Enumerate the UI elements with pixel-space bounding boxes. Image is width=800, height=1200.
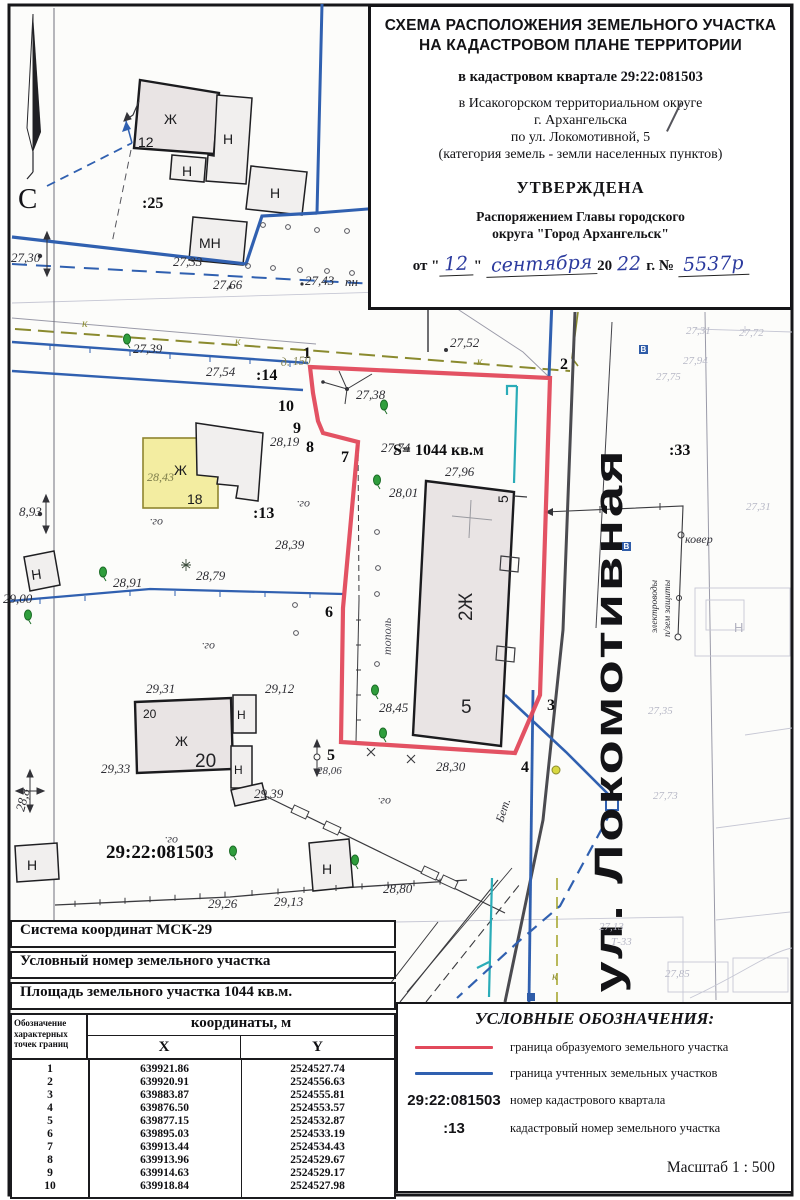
y-coordinate-cell: 2524534.43	[241, 1141, 394, 1154]
approval-date-line: от "12" сентября2022г. № 5537р	[371, 253, 790, 276]
coordinate-row: 4639876.502524553.57	[12, 1102, 394, 1115]
conditional-number-row: Условный номер земельного участка	[10, 951, 396, 979]
map-label: 27,30	[11, 250, 41, 265]
legend-line-swatch	[415, 1046, 493, 1049]
legend-symbol-text: :13	[443, 1120, 465, 1137]
map-label: 27,73	[653, 790, 678, 802]
map-label: 29,00	[3, 591, 33, 606]
map-label: Ж	[174, 462, 187, 478]
approved-heading: УТВЕРЖДЕНА	[371, 178, 790, 198]
map-label: 28,01	[389, 485, 418, 500]
coordinates-box: Обозначение характерных точек границ коо…	[10, 1013, 396, 1199]
area-row: Площадь земельного участка 1044 кв.м.	[10, 982, 396, 1010]
map-label: 29,31	[146, 681, 175, 696]
legend-item: 29:22:081503номер кадастрового квартала	[406, 1092, 791, 1109]
coordinates-header: Обозначение характерных точек границ коо…	[12, 1015, 394, 1060]
map-label: В	[641, 345, 647, 354]
map-label: В	[624, 542, 630, 551]
map-label: 27,13	[599, 921, 624, 933]
y-coordinate-cell: 2524532.87	[241, 1115, 394, 1128]
map-label: 28,06	[317, 765, 342, 777]
x-coordinate-cell: 639883.87	[88, 1089, 241, 1102]
map-label: 29,13	[274, 894, 304, 909]
building-n	[24, 551, 60, 591]
map-label: 5	[495, 495, 511, 503]
map-label: С	[18, 183, 37, 215]
map-label: 27,31	[746, 501, 771, 513]
scale-note: Масштаб 1 : 500	[667, 1159, 775, 1177]
coordinate-row: 1639921.862524527.74	[12, 1063, 394, 1076]
handwritten-doc-number: 5537р	[677, 252, 748, 277]
point-number-cell: 8	[12, 1154, 88, 1167]
map-label: к	[235, 334, 241, 348]
point-number-cell: 6	[12, 1128, 88, 1141]
map-label: 29:22:081503	[106, 842, 214, 863]
coordinate-row: 3639883.872524555.81	[12, 1089, 394, 1102]
date-prefix: от "	[413, 258, 440, 274]
date-suffix: г. №	[646, 258, 674, 274]
coordinate-row: 7639913.442524534.43	[12, 1141, 394, 1154]
map-label: п/зем защиты	[663, 579, 673, 637]
point-number-cell: 5	[12, 1115, 88, 1128]
map-label: ковер	[685, 532, 713, 546]
y-coordinate-cell: 2524529.17	[241, 1167, 394, 1180]
handwritten-year: 22	[612, 252, 647, 275]
column-divider	[88, 1060, 90, 1197]
y-coordinate-cell: 2524527.74	[241, 1063, 394, 1076]
x-coordinate-cell: 639877.15	[88, 1115, 241, 1128]
title-block: СХЕМА РАСПОЛОЖЕНИЯ ЗЕМЕЛЬНОГО УЧАСТКА НА…	[368, 4, 793, 310]
map-label: 27,31	[686, 325, 711, 337]
map-label: 27,72	[739, 327, 764, 339]
legend-item: :13кадастровый номер земельного участка	[406, 1120, 791, 1137]
map-label: Т-33	[611, 936, 632, 948]
map-label: ог.	[201, 640, 215, 654]
map-label: 18	[187, 491, 203, 507]
map-label: 9	[293, 420, 301, 437]
map-label: Н	[734, 620, 743, 635]
legend: УСЛОВНЫЕ ОБОЗНАЧЕНИЯ: граница образуемог…	[396, 1002, 793, 1193]
legend-title: УСЛОВНЫЕ ОБОЗНАЧЕНИЯ:	[398, 1009, 791, 1029]
point-number-cell: 3	[12, 1089, 88, 1102]
map-label: 29,26	[208, 896, 238, 911]
map-label: 27,33	[173, 254, 203, 269]
map-label: 28,80	[383, 881, 413, 896]
y-coordinate-cell: 2524556.63	[241, 1076, 394, 1089]
coordinate-row: 2639920.912524556.63	[12, 1076, 394, 1089]
map-label: к	[82, 316, 88, 330]
map-label: ог.	[296, 498, 310, 512]
x-coordinate-cell: 639914.63	[88, 1167, 241, 1180]
y-coordinate-cell: 2524555.81	[241, 1089, 394, 1102]
map-label: 10	[278, 398, 294, 415]
map-label: 28,79	[196, 568, 226, 583]
map-label: 8	[306, 439, 314, 456]
doc-title-line2: НА КАДАСТРОВОМ ПЛАНЕ ТЕРРИТОРИИ	[371, 36, 790, 56]
map-label: 27,35	[648, 705, 673, 717]
map-label: :33	[669, 442, 690, 459]
date-quote: "	[474, 258, 482, 274]
map-label: ог.	[149, 516, 163, 530]
map-label: пн	[345, 274, 358, 289]
valve-marker	[552, 766, 560, 774]
map-label: 27,66	[213, 277, 243, 292]
street-line: по ул. Локомотивной, 5	[371, 129, 790, 146]
map-label: Н	[182, 163, 192, 179]
x-column-header: X	[88, 1036, 241, 1058]
point-number-cell: 7	[12, 1141, 88, 1154]
map-label: 27,43	[305, 273, 335, 288]
land-category-line: (категория земель - земли населенных пун…	[371, 146, 790, 163]
legend-item-label: кадастровый номер земельного участка	[510, 1121, 720, 1136]
coordinate-row: 10639918.842524527.98	[12, 1180, 394, 1193]
point-number-cell: 2	[12, 1076, 88, 1089]
map-label: 12	[138, 134, 154, 150]
map-label: 29,39	[254, 786, 284, 801]
coords-column-header: координаты, м	[88, 1015, 394, 1036]
doc-title-line1: СХЕМА РАСПОЛОЖЕНИЯ ЗЕМЕЛЬНОГО УЧАСТКА	[371, 16, 790, 36]
y-coordinate-cell: 2524527.98	[241, 1180, 394, 1193]
map-label: 27,85	[665, 968, 690, 980]
map-label: 28,45	[379, 700, 409, 715]
map-label: ог.	[164, 834, 178, 848]
map-label: 2Ж	[456, 592, 477, 621]
map-label: 5	[461, 697, 472, 718]
point-number-cell: 9	[12, 1167, 88, 1180]
map-label: :14	[256, 367, 277, 384]
x-coordinate-cell: 639913.96	[88, 1154, 241, 1167]
y-coordinate-cell: 2524533.19	[241, 1128, 394, 1141]
map-label: 27,38	[356, 387, 386, 402]
map-label: 27,96	[445, 464, 475, 479]
map-label: 27,94	[683, 355, 708, 367]
map-label: 20	[195, 751, 216, 772]
map-label: 28,30	[436, 759, 466, 774]
map-label: 27,39	[133, 341, 163, 356]
x-coordinate-cell: 639918.84	[88, 1180, 241, 1193]
map-label: 27,54	[206, 364, 236, 379]
map-label: 27,52	[450, 335, 480, 350]
map-label: ог.	[377, 795, 391, 809]
order-line2: округа "Город Архангельск"	[371, 225, 790, 242]
coordinate-row: 9639914.632524529.17	[12, 1167, 394, 1180]
map-label: Н	[234, 763, 243, 777]
handwritten-day: 12	[439, 252, 474, 276]
legend-symbol	[406, 1072, 502, 1075]
map-label: Н	[237, 708, 246, 722]
coordinate-row: 5639877.152524532.87	[12, 1115, 394, 1128]
legend-item-label: граница учтенных земельных участков	[510, 1066, 717, 1081]
coord-system-row: Система координат МСК-29	[10, 920, 396, 948]
map-label: тополь	[380, 617, 394, 655]
legend-item: граница образуемого земельного участка	[406, 1040, 791, 1055]
street-name-label: ул. Локомотивная	[587, 448, 631, 993]
map-label: 27,75	[656, 371, 681, 383]
x-coordinate-cell: 639920.91	[88, 1076, 241, 1089]
legend-rows: граница образуемого земельного участкагр…	[398, 1040, 791, 1137]
legend-symbol: 29:22:081503	[406, 1092, 502, 1109]
point-number-cell: 10	[12, 1180, 88, 1193]
legend-item-label: граница образуемого земельного участка	[510, 1040, 728, 1055]
map-label: 2	[560, 356, 568, 373]
map-label: 8,93	[19, 504, 42, 519]
year-prefix: 20	[597, 258, 612, 274]
x-coordinate-cell: 639876.50	[88, 1102, 241, 1115]
map-label: 5	[327, 747, 335, 764]
map-label: Ж	[164, 111, 177, 127]
legend-symbol: :13	[406, 1120, 502, 1137]
map-label: 28,43	[147, 470, 174, 484]
x-coordinate-cell: 639895.03	[88, 1128, 241, 1141]
map-label: к	[477, 354, 483, 368]
coordinate-table: Система координат МСК-29 Условный номер …	[10, 920, 396, 1199]
cadastral-scheme-page: ул. Локомотивная 27,3027,3327,6627,43пн2…	[0, 0, 800, 1200]
map-label: 4	[521, 759, 529, 776]
coordinate-row: 8639913.962524529.67	[12, 1154, 394, 1167]
map-label: 29,12	[265, 681, 295, 696]
map-label: 20	[143, 707, 157, 721]
map-label: к	[552, 969, 558, 983]
map-label: Н	[322, 861, 332, 877]
map-label: :25	[142, 195, 163, 212]
cadastral-quarter-line: в кадастровом квартале 29:22:081503	[371, 69, 790, 86]
x-coordinate-cell: 639921.86	[88, 1063, 241, 1076]
point-number-cell: 4	[12, 1102, 88, 1115]
map-label: электроводы	[649, 579, 660, 633]
map-label: 3	[547, 697, 555, 714]
map-label: 29,33	[101, 761, 131, 776]
handwritten-month: сентября	[485, 251, 597, 278]
y-column-header: Y	[241, 1036, 394, 1058]
map-label: 28,39	[275, 537, 305, 552]
map-label: S= 1044 кв.м	[393, 442, 484, 459]
map-label: д. 150	[280, 353, 311, 369]
map-label: Н	[27, 857, 37, 873]
map-label: 7	[341, 449, 349, 466]
order-line1: Распоряжением Главы городского	[371, 208, 790, 225]
city-line: г. Архангельска	[371, 112, 790, 129]
x-coordinate-cell: 639913.44	[88, 1141, 241, 1154]
legend-symbol-text: 29:22:081503	[407, 1092, 500, 1109]
column-divider	[241, 1060, 242, 1197]
map-label: 6	[325, 604, 333, 621]
map-label: МН	[199, 235, 221, 251]
legend-symbol	[406, 1046, 502, 1049]
coordinate-row: 6639895.032524533.19	[12, 1128, 394, 1141]
map-label: 28,91	[113, 575, 142, 590]
okrug-line: в Исакогорском территориальном округе	[371, 95, 790, 112]
point-number-cell: 1	[12, 1063, 88, 1076]
map-label: Ж	[175, 733, 188, 749]
y-coordinate-cell: 2524553.57	[241, 1102, 394, 1115]
legend-line-swatch	[415, 1072, 493, 1075]
y-coordinate-cell: 2524529.67	[241, 1154, 394, 1167]
map-label: :13	[253, 505, 274, 522]
legend-item-label: номер кадастрового квартала	[510, 1093, 665, 1108]
map-label: Н	[270, 185, 280, 201]
point-column-header: Обозначение характерных точек границ	[12, 1015, 88, 1058]
map-label: Н	[223, 131, 233, 147]
legend-item: граница учтенных земельных участков	[406, 1066, 791, 1081]
coordinate-rows: 1639921.862524527.742639920.912524556.63…	[12, 1060, 394, 1197]
